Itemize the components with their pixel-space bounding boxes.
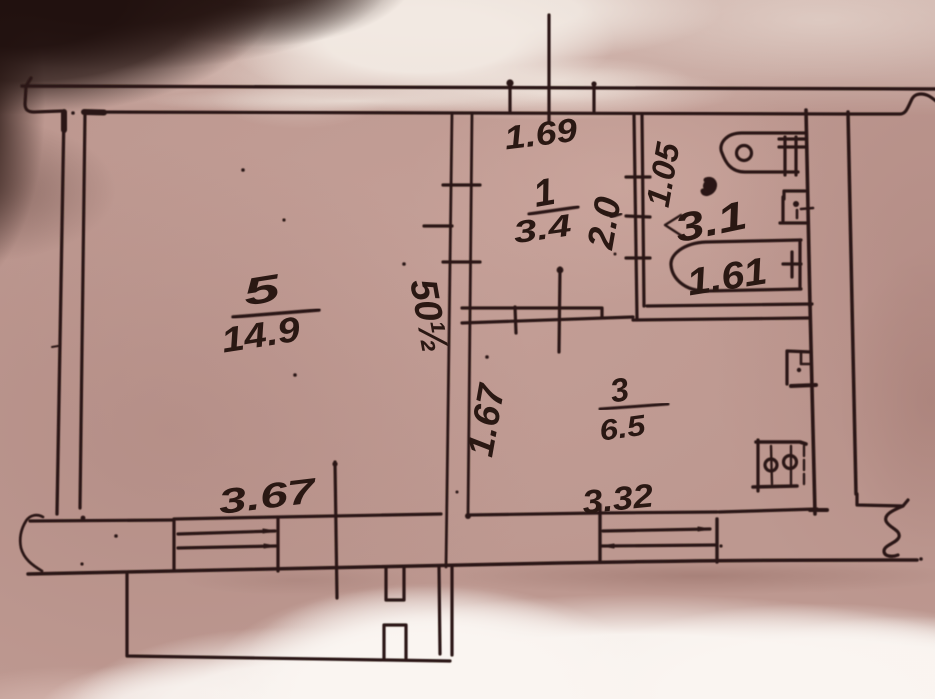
svg-text:1.05: 1.05 <box>639 139 687 209</box>
svg-text:2.0: 2.0 <box>579 194 629 253</box>
svg-text:3.32: 3.32 <box>580 476 655 520</box>
svg-text:3.67: 3.67 <box>216 471 319 522</box>
svg-text:3: 3 <box>607 370 632 410</box>
svg-text:1.61: 1.61 <box>684 250 770 304</box>
svg-text:50½: 50½ <box>401 276 455 356</box>
svg-text:1.67: 1.67 <box>459 379 512 459</box>
svg-text:5: 5 <box>241 267 285 314</box>
svg-text:3.4: 3.4 <box>511 207 573 250</box>
svg-text:6.5: 6.5 <box>597 410 648 448</box>
svg-text:1.69: 1.69 <box>502 111 580 157</box>
